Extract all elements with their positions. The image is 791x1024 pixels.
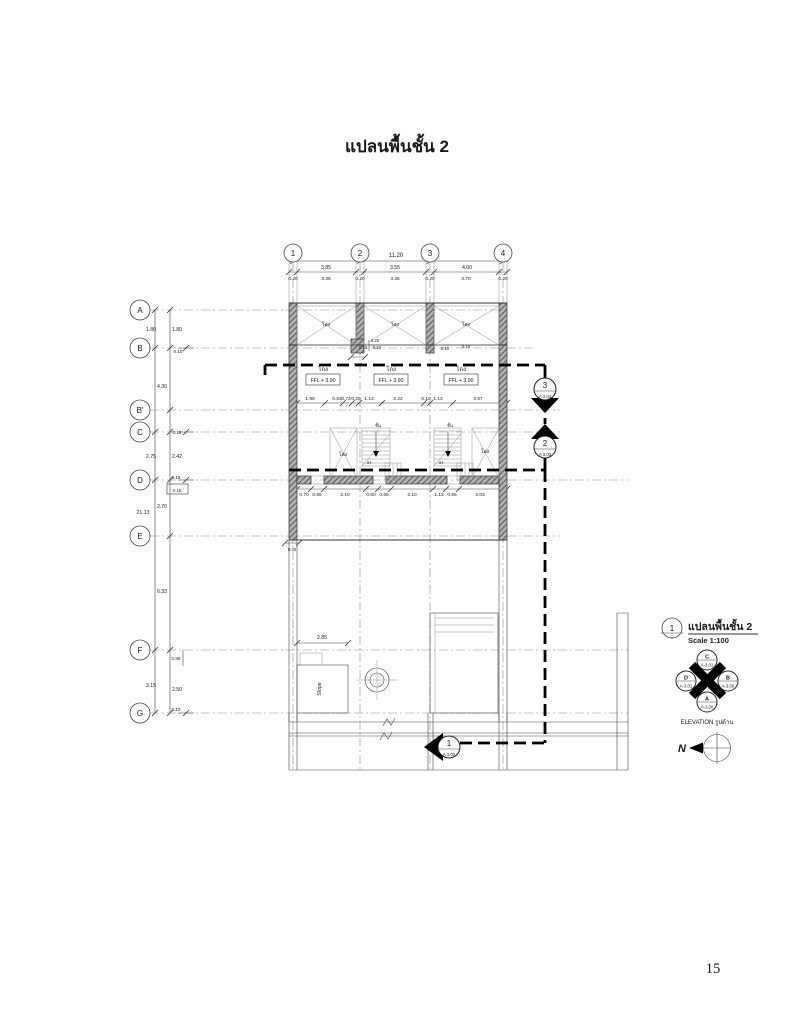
dim-label: 0.65	[447, 492, 457, 498]
dim-label: 0.15	[172, 475, 181, 480]
hall-label: โถง	[386, 365, 396, 373]
stair-down-label: ลง	[367, 460, 372, 465]
dim-label: 0.85	[172, 656, 181, 661]
north-label: N	[678, 743, 687, 755]
dim-label: 0.73	[341, 396, 351, 402]
dim-label: 1.80	[146, 327, 156, 333]
dim-label: 2.85	[317, 635, 327, 641]
elev-sheet: A-3.01	[701, 663, 714, 668]
wall-d-seg1	[297, 476, 311, 484]
section-sheet: A 3.03	[539, 452, 552, 457]
stair-up-label: ขึ้น	[447, 422, 453, 428]
stair-up-label: ขึ้น	[375, 422, 381, 428]
dim-label: 3.70	[461, 276, 471, 282]
wall-col2-stub	[356, 303, 364, 339]
grid-col-label: 1	[291, 249, 296, 258]
dim-label: 0.10	[359, 345, 368, 350]
void-label: โล่ง	[391, 321, 400, 328]
legend-title: แปลนพื้นชั้น 2	[688, 618, 752, 633]
grid-row-label: B	[137, 344, 142, 353]
dim-label: 2.10	[407, 492, 417, 498]
dim-label: 1.13	[433, 396, 443, 402]
dim-label: 2.75	[146, 454, 156, 460]
elev-sheet: A-3.00	[701, 705, 714, 710]
ffl-label: FFL + 3.90	[448, 378, 473, 384]
legend-scale: Scale 1:100	[688, 636, 729, 645]
dim-label: 0.10	[174, 349, 183, 354]
dim-label: 2.70	[157, 504, 167, 510]
elev-sheet: A-3.01	[680, 684, 693, 689]
dim-label: 0.10	[421, 396, 431, 402]
dim-label: 0.40	[288, 547, 297, 552]
wall-left	[289, 303, 297, 540]
dim-label: 3.85	[321, 265, 331, 271]
dim-label: 0.10	[172, 707, 181, 712]
void-label: โล่ง	[462, 321, 471, 328]
section-number: 3	[543, 381, 548, 390]
elev-letter: A	[705, 697, 709, 703]
dim-label: 4.00	[462, 265, 472, 271]
page-number: 15	[706, 961, 721, 977]
grid-row-label: G	[137, 709, 143, 718]
wall-col3-stub	[426, 303, 434, 353]
dim-label: 0.20	[371, 338, 380, 343]
dim-label: 3.36	[390, 276, 400, 282]
hall-label: โถง	[456, 365, 466, 373]
hall-label: โถง	[318, 365, 328, 373]
grid-col-label: 4	[501, 249, 506, 258]
void-label: โล่ง	[339, 451, 348, 458]
ffl-label: FFL + 3.90	[378, 378, 403, 384]
dim-label: 0.10	[462, 344, 471, 349]
floor-plan-drawing: แปลนพื้นชั้น 2 15	[0, 0, 791, 1024]
dim-label: 0.20	[288, 276, 298, 282]
dim-label: 0.20	[425, 276, 435, 282]
elev-letter: B	[726, 676, 730, 682]
grid-col-label: 3	[428, 249, 433, 258]
section-number: 2	[543, 439, 548, 448]
dim-label: 2.50	[172, 687, 182, 693]
dim-label: 0.20	[351, 396, 361, 402]
dim-label: 3.36	[321, 276, 331, 282]
dim-label: 2.22	[393, 396, 403, 402]
dim-label: 2.03	[475, 492, 485, 498]
ffl-label: FFL + 3.90	[310, 378, 335, 384]
grid-row-label: E	[137, 532, 142, 541]
elev-letter: D	[684, 676, 688, 682]
grid-row-label: A	[137, 306, 143, 315]
dim-label: 2.10	[340, 492, 350, 498]
elev-sheet: A-3.00	[722, 684, 735, 689]
dim-label: 2.42	[172, 454, 182, 460]
dim-label: 1.13	[434, 492, 444, 498]
stair-down-label: ลง	[439, 460, 444, 465]
void-label: โล่ง	[322, 321, 331, 328]
dim-label: 0.10	[441, 346, 450, 351]
void-label: โล่ง	[481, 448, 490, 455]
dim-label: 0.20	[355, 276, 365, 282]
section-sheet: A 3.04	[539, 394, 552, 399]
elev-letter: C	[705, 655, 709, 661]
dim-label: 11.20	[389, 253, 404, 259]
dim-label: 1.99	[305, 396, 315, 402]
dim-label: 0.65	[379, 492, 389, 498]
grid-row-label: F	[138, 646, 143, 655]
dim-label: 1.80	[172, 327, 182, 333]
wall-d-seg2	[324, 476, 373, 484]
dim-label: 0.65	[312, 492, 322, 498]
dim-label: 3.15	[146, 683, 156, 689]
dim-label: 0.40	[354, 362, 363, 367]
page-title: แปลนพื้นชั้น 2	[345, 133, 449, 156]
dim-label: 0.70	[299, 492, 309, 498]
dim-label: 0.18	[173, 430, 182, 435]
dim-label: 4.30	[157, 384, 167, 390]
grid-row-label: D	[137, 476, 143, 485]
section-sheet: A 3.02	[443, 752, 456, 757]
slope-label: Slope	[317, 682, 323, 695]
dim-label: 0.60	[366, 492, 376, 498]
wall-right	[499, 303, 507, 540]
dim-label: 0.15	[173, 488, 182, 493]
grid-row-label: B'	[137, 406, 144, 415]
dim-label: 0.20	[498, 276, 508, 282]
section-number: 1	[447, 739, 452, 748]
dim-label: 6.33	[157, 589, 167, 595]
dim-label: 21.13	[137, 510, 150, 516]
drawing-sheet: แปลนพื้นชั้น 2 15	[0, 0, 791, 1024]
grid-col-label: 2	[358, 249, 363, 258]
grid-row-label: C	[137, 428, 143, 437]
dim-label: 1.13	[364, 396, 374, 402]
dim-label: 0.10	[373, 345, 382, 350]
legend-ref-number: 1	[670, 624, 675, 633]
elevation-caption: ELEVATION รูปด้าน	[681, 719, 734, 726]
dim-label: 2.57	[473, 396, 483, 402]
dim-label: 3.55	[390, 265, 400, 271]
